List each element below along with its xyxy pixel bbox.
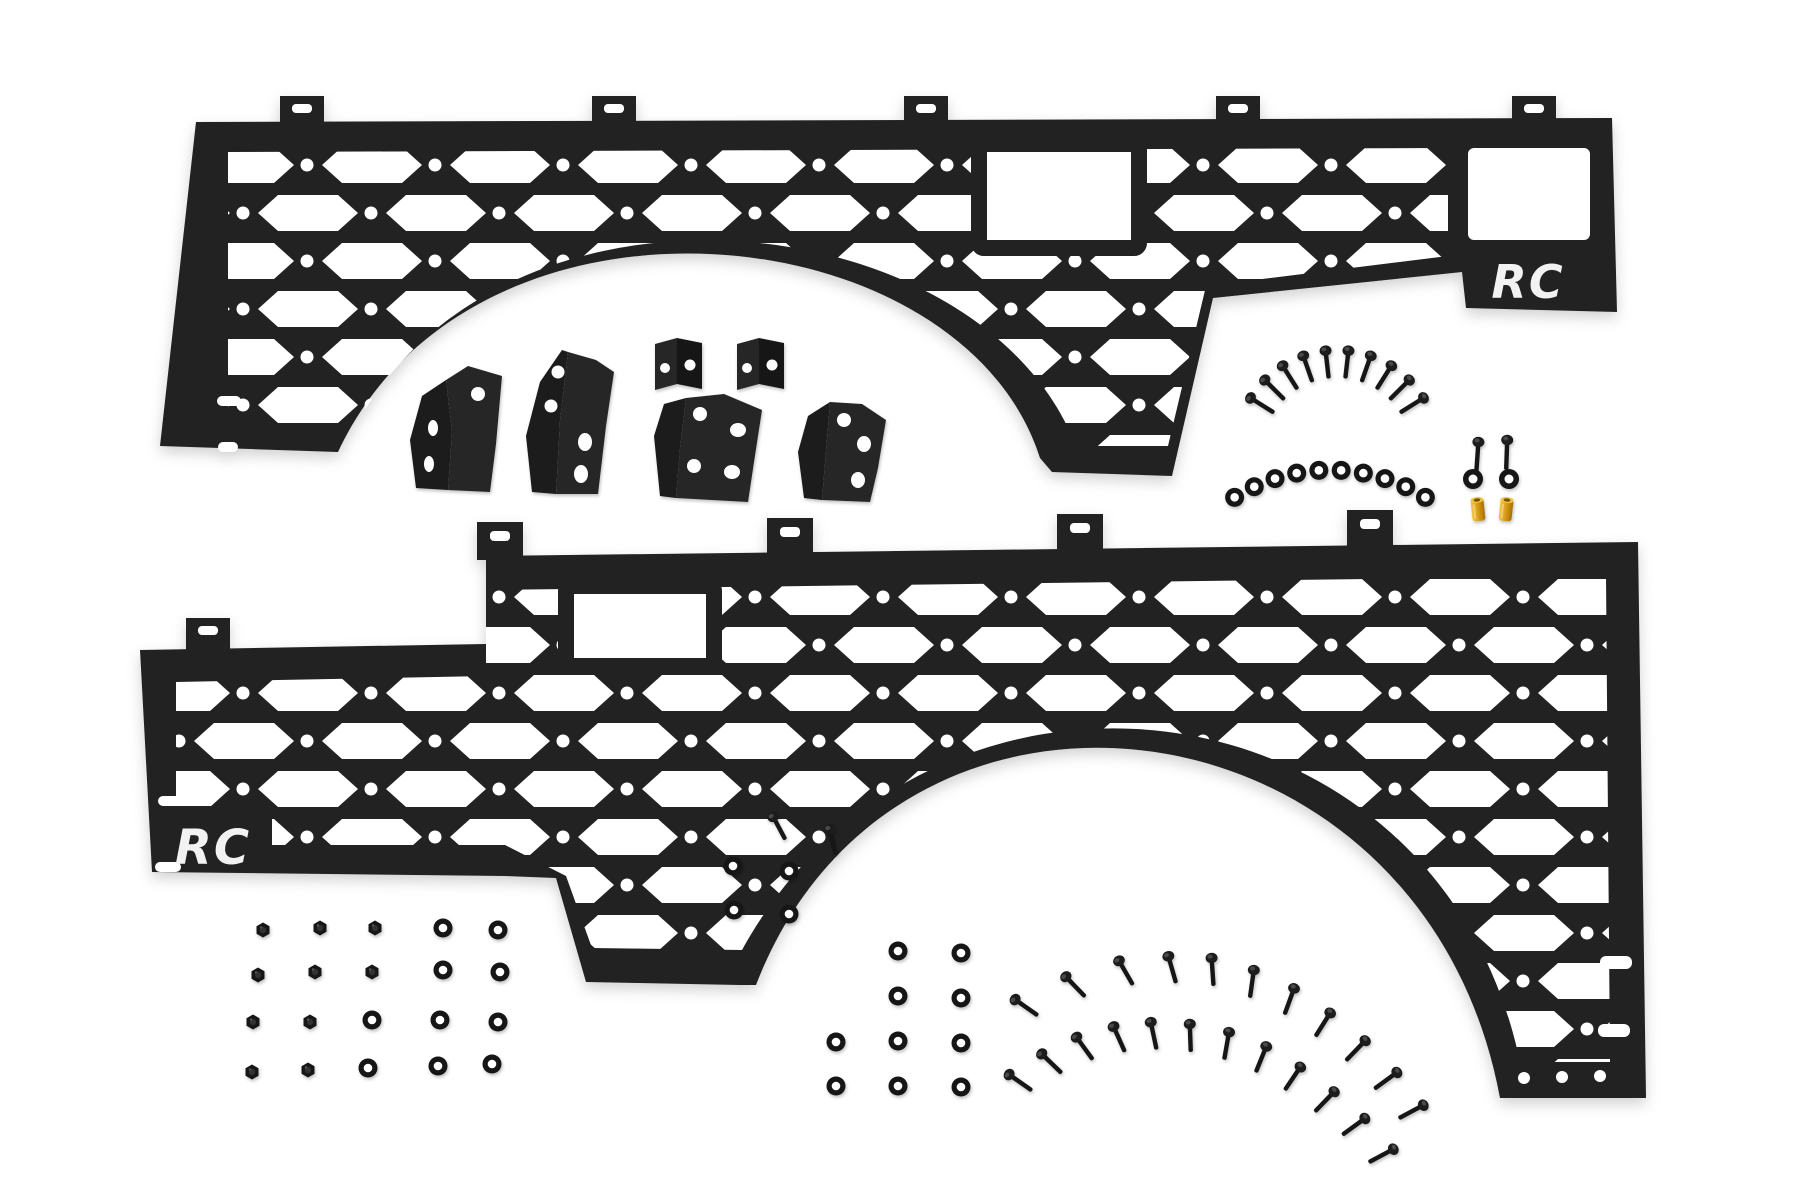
angled-bracket (526, 350, 614, 494)
brass-rivet-nut (1470, 496, 1485, 521)
washer (952, 944, 971, 963)
rect-cutout-top (979, 144, 1139, 248)
screw (1339, 345, 1355, 379)
tab-slots-top (292, 104, 1544, 113)
washer (489, 921, 508, 940)
screw (1218, 1026, 1236, 1061)
screw-washer-rivet-pairs (1463, 435, 1519, 522)
rect-cutout-bottom (566, 586, 714, 666)
washer (1245, 477, 1264, 496)
screw-arcs-bottom (1001, 950, 1430, 1168)
washer (1266, 469, 1285, 488)
washer (1499, 469, 1519, 489)
angled-bracket (654, 394, 762, 502)
washer (952, 1078, 971, 1097)
screw (1257, 372, 1289, 404)
washer (1396, 477, 1415, 496)
hex-nut (304, 1015, 317, 1030)
screw (1470, 436, 1484, 472)
washer (434, 961, 453, 980)
screw (1205, 952, 1219, 986)
hex-nut (252, 968, 265, 983)
washer (725, 901, 744, 920)
screw (1069, 1029, 1098, 1063)
screw (1397, 390, 1432, 418)
molle-panel-bottom: RC (130, 510, 1650, 1100)
screw (1106, 1019, 1130, 1054)
screw (1339, 1111, 1373, 1140)
screw (1371, 358, 1399, 392)
hex-nut (314, 921, 327, 936)
washer (1287, 464, 1306, 483)
end-window-top (1468, 148, 1590, 240)
washer (489, 1013, 508, 1032)
washer (889, 987, 908, 1006)
mounting-brackets (410, 338, 886, 502)
brass-rivet-nut (1498, 496, 1513, 521)
washer (1225, 488, 1244, 507)
screw (1111, 953, 1138, 988)
screw (1161, 950, 1182, 985)
washer (429, 1057, 448, 1076)
screw (1243, 390, 1278, 418)
product-photo: RC (0, 0, 1799, 1200)
screw (1319, 345, 1335, 379)
screw (1385, 372, 1417, 404)
molle-panel-top: RC (150, 96, 1630, 488)
screw (1310, 1084, 1342, 1116)
screw (1001, 1067, 1035, 1096)
angled-bracket (410, 366, 502, 492)
washer (952, 1034, 971, 1053)
hex-nut (366, 965, 379, 980)
screw (1007, 992, 1041, 1021)
hex-nut (247, 1015, 260, 1030)
washer (359, 1059, 378, 1078)
screw (1296, 349, 1318, 384)
screw (1371, 1065, 1405, 1094)
screw (1280, 1059, 1309, 1093)
washer (363, 1011, 382, 1030)
washer (952, 989, 971, 1008)
washer-arc-top (1225, 461, 1435, 507)
screw (1144, 1016, 1163, 1051)
product-photo-stage: RC (0, 0, 1799, 1200)
hex-nut (302, 1063, 315, 1078)
channel-clip-bracket (655, 338, 702, 390)
washer (780, 862, 799, 881)
screw (1310, 1005, 1338, 1040)
washer (1375, 469, 1394, 488)
washer (434, 919, 453, 938)
rc-logo-bottom: RC (175, 820, 251, 876)
washer (827, 1033, 846, 1052)
screw (1279, 981, 1302, 1016)
washer (431, 1011, 450, 1030)
washer (491, 963, 510, 982)
washer (1463, 469, 1483, 489)
washer (483, 1055, 502, 1074)
screw (1250, 1039, 1274, 1074)
hex-grid-cutouts-top (150, 118, 1630, 488)
washer (724, 857, 743, 876)
washer (889, 1077, 908, 1096)
screw (1034, 1046, 1066, 1078)
screw (1275, 358, 1303, 392)
screw (1356, 349, 1378, 384)
hex-nut (369, 921, 382, 936)
washer (1416, 488, 1435, 507)
angled-bracket (798, 402, 886, 502)
hex-nut (246, 1065, 259, 1080)
screw (1341, 1033, 1373, 1065)
screw (1184, 1019, 1197, 1053)
nut-washer-grid (246, 919, 510, 1080)
screw (1058, 969, 1090, 1001)
washer (889, 942, 908, 961)
washer (780, 905, 799, 924)
screw (1396, 1097, 1431, 1123)
hex-nut (257, 923, 270, 938)
washer (889, 1032, 908, 1051)
screw-arc-top (1243, 345, 1431, 418)
hex-nut (309, 965, 322, 980)
washer (1332, 461, 1351, 480)
hex-grid-cutouts-bottom (130, 540, 1650, 1100)
rc-logo-top: RC (1491, 255, 1564, 309)
washer (1354, 464, 1373, 483)
screw (1244, 964, 1261, 999)
screw (1500, 435, 1513, 471)
screw (1366, 1141, 1401, 1167)
channel-clip-bracket (737, 338, 784, 390)
washer (1309, 461, 1328, 480)
washer (827, 1077, 846, 1096)
